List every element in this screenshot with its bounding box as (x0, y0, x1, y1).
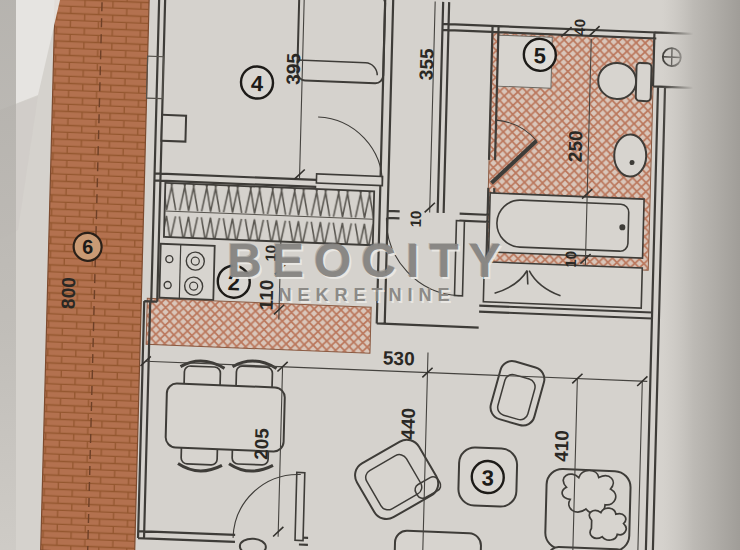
dim-terrace-length: 800 (58, 277, 80, 310)
dim-bedroom-width: 395 (282, 52, 304, 85)
room-number-bedroom: 4 (251, 71, 265, 97)
floorplan-photo: 6 800 (0, 0, 740, 550)
dim-living-width: 530 (383, 347, 415, 369)
sink (614, 134, 647, 177)
sofa-bottom (394, 530, 481, 550)
terrace: 6 800 (41, 0, 150, 550)
dim-entry-wall: 10 (407, 210, 424, 227)
terrace-number: 6 (82, 236, 94, 258)
floorplan-svg: 6 800 (0, 0, 740, 550)
dim-bathroom-depth: 250 (565, 130, 587, 163)
watermark-title: BEOCITY (227, 234, 510, 287)
watermark-subtitle: NEKRETNINE (278, 285, 455, 305)
dim-tub-wall: 10 (562, 251, 579, 268)
toilet (598, 61, 652, 101)
dim-entry-depth: 355 (416, 48, 438, 81)
room-number-bathroom: 5 (533, 43, 546, 68)
room-number-living: 3 (481, 465, 494, 490)
dim-shaft-offset: 40 (571, 19, 588, 36)
dim-living-depth: 440 (397, 408, 419, 441)
stove (159, 244, 214, 300)
dim-dining-width: 205 (251, 427, 273, 460)
wall-pillar (161, 115, 186, 142)
dim-living-depth-right: 410 (551, 430, 573, 463)
